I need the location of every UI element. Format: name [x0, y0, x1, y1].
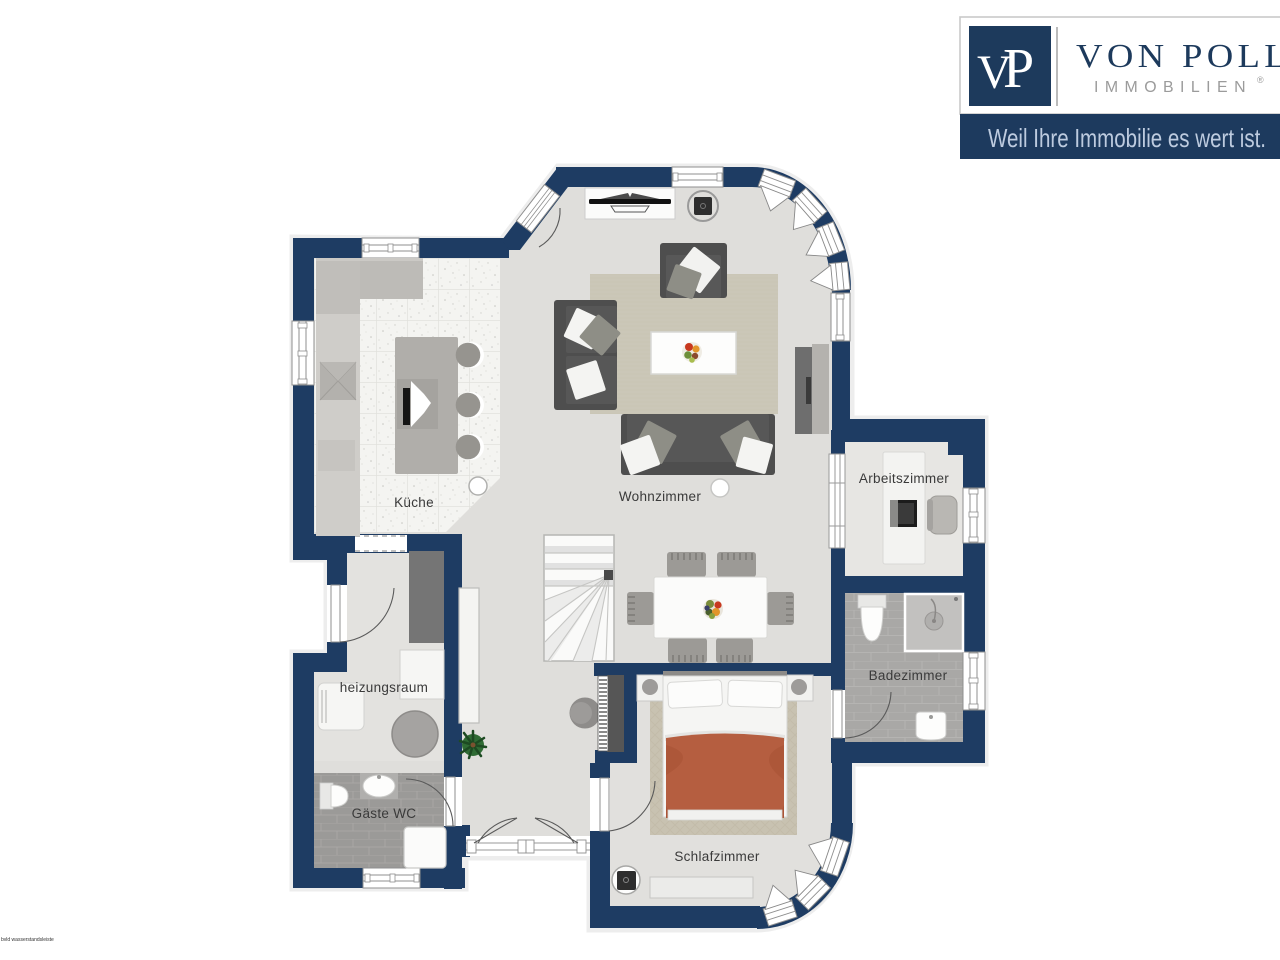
svg-text:Gäste WC: Gäste WC — [352, 806, 417, 821]
svg-text:heizungsraum: heizungsraum — [340, 680, 428, 695]
svg-text:Wohnzimmer: Wohnzimmer — [619, 489, 701, 504]
svg-text:IMMOBILIEN: IMMOBILIEN — [1094, 79, 1252, 96]
svg-text:Weil Ihre Immobilie es wert is: Weil Ihre Immobilie es wert ist. — [988, 123, 1266, 153]
svg-text:bvld wasserstandsleiste: bvld wasserstandsleiste — [1, 937, 54, 943]
svg-text:Badezimmer: Badezimmer — [869, 668, 948, 683]
svg-text:Schlafzimmer: Schlafzimmer — [674, 849, 760, 864]
svg-text:VON POLL: VON POLL — [1076, 38, 1280, 75]
svg-text:Küche: Küche — [394, 495, 434, 510]
svg-text:Arbeitszimmer: Arbeitszimmer — [859, 471, 949, 486]
svg-text:P: P — [1003, 38, 1034, 100]
svg-text:®: ® — [1257, 75, 1264, 85]
